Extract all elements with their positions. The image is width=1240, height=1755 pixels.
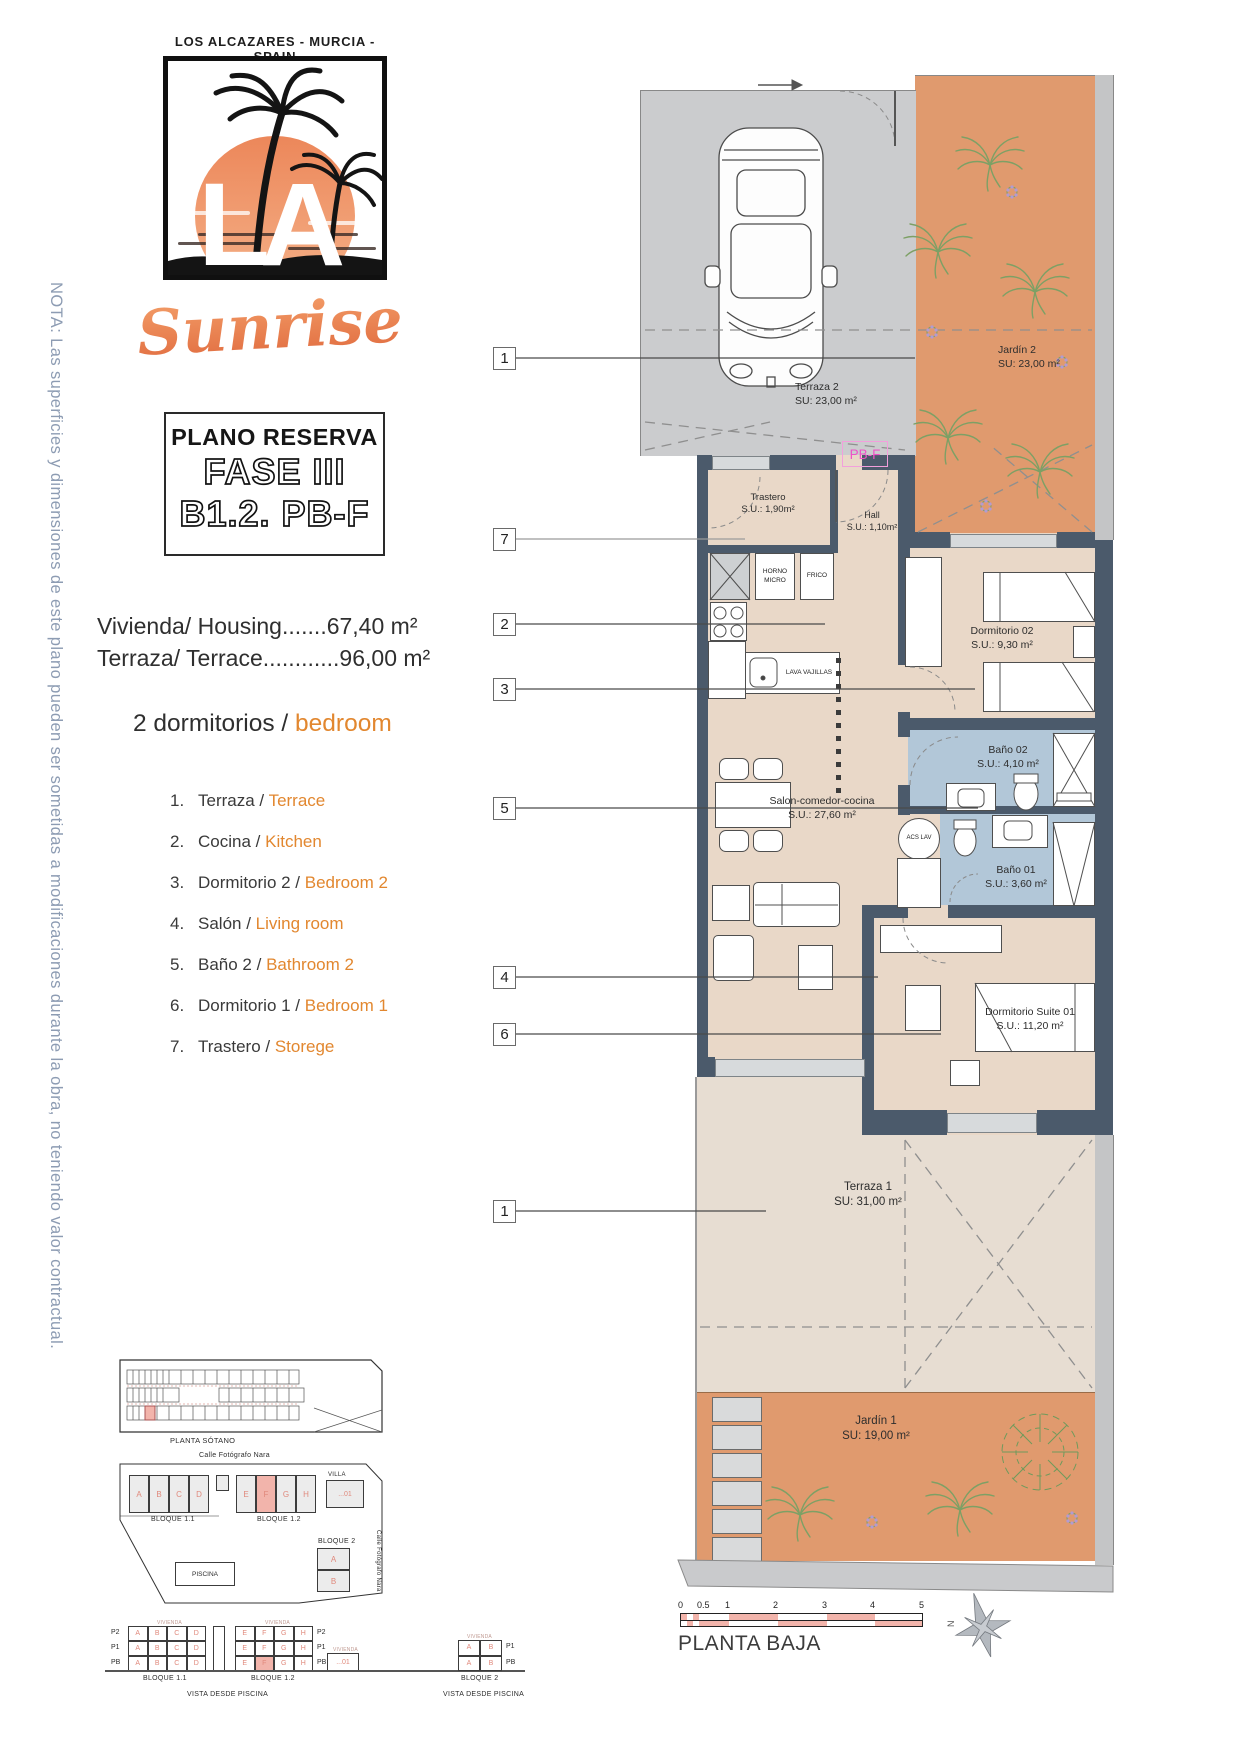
legend-es: Dormitorio 1 / [198, 996, 300, 1015]
boundary-fence [1095, 75, 1114, 540]
unit-letter: D [196, 1490, 202, 1499]
legend-item-7: 7.Trastero / Storege [170, 1037, 334, 1057]
elev-cell: B [480, 1640, 502, 1656]
plano-reserva-label: PLANO RESERVA [166, 424, 383, 451]
boundary-fence [1095, 1135, 1114, 1565]
legend-en: Kitchen [265, 832, 322, 851]
entry-arrow-icon [758, 80, 802, 90]
elev-letter: F [262, 1660, 266, 1667]
site-unit-C: C [169, 1475, 189, 1513]
floor-plan-sheet: NOTA: Las superficies y dimensiones de e… [0, 0, 1240, 1755]
legend-es: Dormitorio 2 / [198, 873, 300, 892]
room-name: Dormitorio 02 [970, 625, 1033, 637]
villa-label: VILLA [328, 1472, 346, 1478]
bathroom-sink [946, 783, 996, 811]
bottom-fence [678, 1560, 1113, 1592]
callout-bedroom1: 6 [493, 1023, 516, 1046]
living-room-label: Salon-comedor-cocinaS.U.: 27,60 m² [769, 795, 874, 822]
wardrobe [905, 557, 942, 667]
room-name: Trastero [750, 492, 785, 503]
kitchen-counter [708, 641, 746, 699]
nightstand [1073, 626, 1095, 658]
elev-cell: G [274, 1656, 294, 1671]
row-label-pb: PB [506, 1659, 515, 1666]
elev-letter: D [194, 1660, 199, 1667]
room-area: SU: 31,00 m² [834, 1195, 902, 1210]
elev-cell: E [235, 1656, 255, 1671]
legend-en: Terrace [269, 791, 326, 810]
legend-num: 2. [170, 832, 198, 852]
elev-cell: D [187, 1626, 207, 1641]
legend-es: Trastero / [198, 1037, 270, 1056]
garden-2-label: Jardín 2SU: 23,00 m² [998, 344, 1060, 371]
elev-letter: B [155, 1630, 160, 1637]
dishwasher-label: LAVA VAJILLAS [780, 656, 838, 690]
elevation-tower [213, 1626, 225, 1671]
elev-letter: C [174, 1645, 179, 1652]
garden-1-label: Jardín 1SU: 19,00 m² [842, 1414, 910, 1444]
chair [719, 830, 749, 852]
room-area: S.U.: 3,60 m² [985, 878, 1047, 892]
elev-cell: D [187, 1641, 207, 1656]
elevation-views: VIVIENDA VIVIENDA P2 P1 PB A B C D A B C… [105, 1618, 535, 1703]
scale-tick: 4 [870, 1600, 875, 1610]
room-area: SU: 19,00 m² [842, 1429, 910, 1444]
compass-icon [947, 1586, 1018, 1664]
legend-num: 3. [170, 873, 198, 893]
bloque2-unit-A: A [317, 1548, 350, 1570]
legend-num: 1. [170, 791, 198, 811]
legend-num: 4. [170, 914, 198, 934]
bedrooms-heading-en: bedroom [295, 710, 392, 737]
wall-segment [862, 918, 874, 1135]
bloque2-caption: BLOQUE 2 [318, 1538, 355, 1545]
elev-letter: B [155, 1660, 160, 1667]
wall-segment [910, 455, 915, 532]
elevation-bloque2: A B A B [458, 1640, 502, 1671]
scale-bar-graphic [680, 1613, 923, 1627]
wall-segment [697, 455, 712, 470]
bloque2-unit-B: B [317, 1570, 350, 1592]
legend-num: 5. [170, 955, 198, 975]
window [950, 534, 1057, 548]
wall-segment [898, 806, 1095, 814]
elev-letter: D [194, 1630, 199, 1637]
boundary-wall [1095, 540, 1113, 1135]
legend-item-4: 4.Salón / Living room [170, 914, 344, 934]
legend-item-1: 1.Terraza / Terrace [170, 791, 325, 811]
floor-caption: PLANTA BAJA [678, 1632, 821, 1656]
elev-cell: A [128, 1641, 148, 1656]
room-name: Baño 01 [996, 864, 1035, 876]
elev-cell: B [148, 1641, 168, 1656]
contract-note: NOTA: Las superficies y dimensiones de e… [46, 282, 65, 1442]
garden-step [712, 1481, 762, 1506]
unit-letter: A [136, 1490, 141, 1499]
window [947, 1113, 1037, 1133]
sofa [753, 882, 840, 927]
legend-item-3: 3.Dormitorio 2 / Bedroom 2 [170, 873, 388, 893]
elev-cell: H [294, 1656, 314, 1671]
legend-es: Terraza / [198, 791, 264, 810]
elev-cell: A [128, 1626, 148, 1641]
pool-box: PISCINA [175, 1562, 235, 1586]
room-area: S.U.: 27,60 m² [769, 809, 874, 823]
room-area: SU: 23,00 m² [998, 358, 1060, 372]
room-name: Jardín 2 [998, 344, 1036, 356]
elev-cell: H [294, 1626, 314, 1641]
legend-num: 7. [170, 1037, 198, 1057]
elev-bloque11-caption: BLOQUE 1.1 [143, 1675, 187, 1682]
window [712, 456, 770, 470]
water-heater-label: ACS LAV [898, 818, 940, 860]
chair [753, 830, 783, 852]
chair [753, 758, 783, 780]
pool-label: PISCINA [192, 1571, 218, 1578]
callout-kitchen: 2 [493, 613, 516, 636]
wall-segment [1037, 1110, 1095, 1135]
elev-letter: C [174, 1660, 179, 1667]
legend-en: Bedroom 2 [305, 873, 388, 892]
laundry-box [897, 858, 941, 908]
garden-step [712, 1397, 762, 1422]
elev-letter: A [135, 1630, 140, 1637]
garden-step [712, 1453, 762, 1478]
unit-letter: F [264, 1490, 269, 1499]
hall-label: HallS.U.: 1,10m² [847, 510, 898, 533]
wardrobe [880, 925, 1002, 953]
scale-tick: 0 [678, 1600, 683, 1610]
wall-segment [948, 905, 1095, 918]
room-name: Dormitorio Suite 01 [985, 1006, 1075, 1018]
row-label-pb: PB [317, 1659, 326, 1666]
elev-letter: H [301, 1645, 306, 1652]
room-area: S.U.: 9,30 m² [970, 639, 1033, 653]
legend-en: Bedroom 1 [305, 996, 388, 1015]
callout-bathroom2: 5 [493, 797, 516, 820]
bloque11-caption: BLOQUE 1.1 [151, 1516, 195, 1523]
garage-terrace-2-area [640, 90, 916, 456]
elev-letter: B [489, 1660, 494, 1667]
north-letter: N [946, 1621, 956, 1628]
fase-label: FASE III [166, 451, 383, 493]
legend-en: Storege [275, 1037, 335, 1056]
basement-caption: PLANTA SÓTANO [170, 1436, 235, 1445]
garden-step [712, 1537, 762, 1562]
shower [1053, 733, 1095, 807]
elev-letter: B [155, 1645, 160, 1652]
elev-cell: A [458, 1640, 480, 1656]
elev-letter: E [242, 1645, 247, 1652]
legend-en: Bathroom 2 [266, 955, 354, 974]
elev-letter: E [242, 1660, 247, 1667]
elev-cell-highlighted: F [255, 1656, 275, 1671]
shaft-box [710, 553, 750, 600]
garden-step [712, 1509, 762, 1534]
bloque12-caption: BLOQUE 1.2 [257, 1516, 301, 1523]
callout-terrace1: 1 [493, 1200, 516, 1223]
legend-item-6: 6.Dormitorio 1 / Bedroom 1 [170, 996, 388, 1016]
basement-plan-thumbnail [119, 1358, 383, 1436]
elev-cell: A [128, 1656, 148, 1671]
scale-tick: 3 [822, 1600, 827, 1610]
brand-logo: LA [163, 56, 387, 280]
bathroom-1-label: Baño 01S.U.: 3,60 m² [985, 864, 1047, 891]
wardrobe [1053, 822, 1095, 906]
legend-en: Living room [256, 914, 344, 933]
garden-2-area [915, 75, 1095, 533]
elev-bloque2-caption: BLOQUE 2 [461, 1675, 498, 1682]
elev-letter: F [262, 1645, 266, 1652]
unit-letter: G [283, 1490, 289, 1499]
callout-bedroom2: 3 [493, 678, 516, 701]
elevation-villa: ...01 [327, 1653, 359, 1671]
scale-tick: 0.5 [697, 1600, 710, 1610]
wall-segment [697, 1057, 715, 1077]
room-name: Baño 02 [988, 744, 1027, 756]
site-small-box [216, 1475, 229, 1491]
villa-box: ...01 [326, 1480, 364, 1508]
site-unit-D: D [189, 1475, 209, 1513]
row-label-pb: PB [111, 1659, 120, 1666]
armchair [713, 935, 754, 981]
elevation-bloque12: E F G H E F G H E F G H [235, 1626, 313, 1671]
legend-es: Baño 2 / [198, 955, 261, 974]
sliding-door-window [715, 1059, 865, 1077]
legend-es: Cocina / [198, 832, 260, 851]
scale-bar: 0 0.5 1 2 3 4 5 [680, 1600, 923, 1632]
wall-segment [1057, 532, 1095, 548]
logo-letters: LA [198, 159, 343, 275]
oven-microwave-label: HORNO MICRO [755, 553, 795, 600]
room-area: S.U.: 11,20 m² [985, 1020, 1075, 1034]
site-unit-G: G [276, 1475, 296, 1513]
storage-label: TrasteroS.U.: 1,90m² [741, 492, 794, 517]
elev-letter: B [489, 1644, 494, 1651]
elev-letter: F [262, 1630, 266, 1637]
legend-item-5: 5.Baño 2 / Bathroom 2 [170, 955, 354, 975]
wall-segment [910, 532, 950, 548]
elev-letter: A [135, 1645, 140, 1652]
site-unit-H: H [296, 1475, 316, 1513]
elev-cell: F [255, 1641, 275, 1656]
single-bed [983, 572, 1095, 622]
chair [719, 758, 749, 780]
housing-area-line: Vivienda/ Housing.......67,40 m² [97, 613, 417, 640]
room-area: S.U.: 4,10 m² [977, 758, 1039, 772]
elev-cell: E [235, 1641, 255, 1656]
bathroom-2-label: Baño 02S.U.: 4,10 m² [977, 744, 1039, 771]
villa-number: ...01 [336, 1659, 350, 1666]
legend-num: 6. [170, 996, 198, 1016]
elev-cell: C [167, 1641, 187, 1656]
elev-cell: E [235, 1626, 255, 1641]
elev-letter: E [242, 1630, 247, 1637]
room-name: Terraza 2 [795, 381, 839, 393]
wall-segment [697, 470, 708, 1077]
bedrooms-heading-es: 2 dormitorios / [133, 710, 288, 737]
wall-segment [770, 455, 836, 470]
elev-bloque12-caption: BLOQUE 1.2 [251, 1675, 295, 1682]
vista-caption-right: VISTA DESDE PISCINA [443, 1691, 524, 1698]
nightstand [950, 1060, 980, 1086]
elev-cell: B [148, 1626, 168, 1641]
elev-letter: D [194, 1645, 199, 1652]
basement-drawing [119, 1358, 383, 1436]
room-area: S.U.: 1,90m² [741, 504, 794, 516]
elev-cell: A [458, 1656, 480, 1672]
scale-tick: 1 [725, 1600, 730, 1610]
legend-item-2: 2.Cocina / Kitchen [170, 832, 322, 852]
wall-segment [830, 470, 838, 545]
row-label-p2: P2 [111, 1629, 120, 1636]
elev-letter: A [135, 1660, 140, 1667]
callout-terrace: 1 [493, 347, 516, 370]
elev-letter: G [281, 1645, 286, 1652]
vista-caption-left: VISTA DESDE PISCINA [187, 1691, 268, 1698]
boundary-line-left [695, 1077, 697, 1560]
wall-segment [874, 1110, 947, 1135]
scale-tick: 5 [919, 1600, 924, 1610]
bedrooms-heading: 2 dormitorios / bedroom [133, 710, 392, 738]
elev-letter: G [281, 1660, 286, 1667]
wall-segment [697, 545, 838, 553]
row-label-p1: P1 [111, 1644, 120, 1651]
villa-number: ...01 [338, 1491, 352, 1498]
unit-letter: B [331, 1577, 336, 1586]
row-label-p1: P1 [317, 1644, 326, 1651]
elev-letter: H [301, 1660, 306, 1667]
room-name: Jardín 1 [855, 1415, 897, 1427]
legend-es: Salón / [198, 914, 251, 933]
row-label-p1: P1 [506, 1643, 515, 1650]
elev-cell: C [167, 1656, 187, 1671]
street-label-right: Calle Fotógrafo Nara [375, 1530, 381, 1600]
site-unit-B: B [149, 1475, 169, 1513]
suite-label: Dormitorio Suite 01S.U.: 11,20 m² [985, 1006, 1075, 1033]
unit-letter: H [303, 1490, 309, 1499]
elev-cell: G [274, 1641, 294, 1656]
elev-cell: B [480, 1656, 502, 1672]
unit-tag: PB-F [842, 441, 888, 467]
site-unit-F-highlighted: F [256, 1475, 276, 1513]
site-unit-E: E [236, 1475, 256, 1513]
elev-cell: H [294, 1641, 314, 1656]
bathroom-sink [992, 815, 1048, 848]
room-name: Terraza 1 [844, 1181, 892, 1193]
terrace-1-label: Terraza 1SU: 31,00 m² [834, 1180, 902, 1210]
coffee-table [798, 945, 833, 990]
unit-letter: A [331, 1555, 336, 1564]
dresser [905, 985, 941, 1031]
callout-storage: 7 [493, 528, 516, 551]
room-area: SU: 23,00 m² [795, 395, 857, 409]
elev-letter: A [467, 1644, 472, 1651]
side-table [712, 885, 750, 921]
brand-script: Sunrise [98, 281, 441, 372]
room-area: S.U.: 1,10m² [847, 522, 898, 534]
unit-letter: E [243, 1490, 248, 1499]
unit-letter: B [156, 1490, 161, 1499]
elev-cell: F [255, 1626, 275, 1641]
site-plan-thumbnail: Calle Fotógrafo Nara A B C D E F G H VIL… [119, 1450, 389, 1610]
scale-tick: 2 [773, 1600, 778, 1610]
elev-cell: G [274, 1626, 294, 1641]
unit-code-label: B1.2. PB-F [166, 493, 383, 535]
garden-step [712, 1425, 762, 1450]
room-name: Hall [864, 510, 880, 520]
fridge-label: FRICO [800, 553, 834, 600]
terrace-area-line: Terraza/ Terrace............96,00 m² [97, 645, 430, 672]
wall-segment [865, 1057, 874, 1077]
site-unit-A: A [129, 1475, 149, 1513]
elevation-bloque11: A B C D A B C D A B C D [128, 1626, 206, 1671]
row-label-p2: P2 [317, 1629, 326, 1636]
room-name: Salon-comedor-cocina [769, 795, 874, 807]
elev-cell: C [167, 1626, 187, 1641]
elev-cell: B [148, 1656, 168, 1671]
bedroom-2-label: Dormitorio 02S.U.: 9,30 m² [970, 625, 1033, 652]
wall-segment [898, 718, 1095, 730]
elev-letter: A [467, 1660, 472, 1667]
callout-living: 4 [493, 966, 516, 989]
unit-letter: C [176, 1490, 182, 1499]
reservation-title-box: PLANO RESERVA FASE III B1.2. PB-F [164, 412, 385, 556]
elev-letter: H [301, 1630, 306, 1637]
single-bed [983, 662, 1095, 712]
terrace-2-label: Terraza 2SU: 23,00 m² [795, 381, 857, 408]
elev-letter: C [174, 1630, 179, 1637]
sunset-palms-logo: LA [168, 61, 382, 275]
elev-cell: D [187, 1656, 207, 1671]
elev-letter: G [281, 1630, 286, 1637]
stove-hob [710, 602, 747, 641]
